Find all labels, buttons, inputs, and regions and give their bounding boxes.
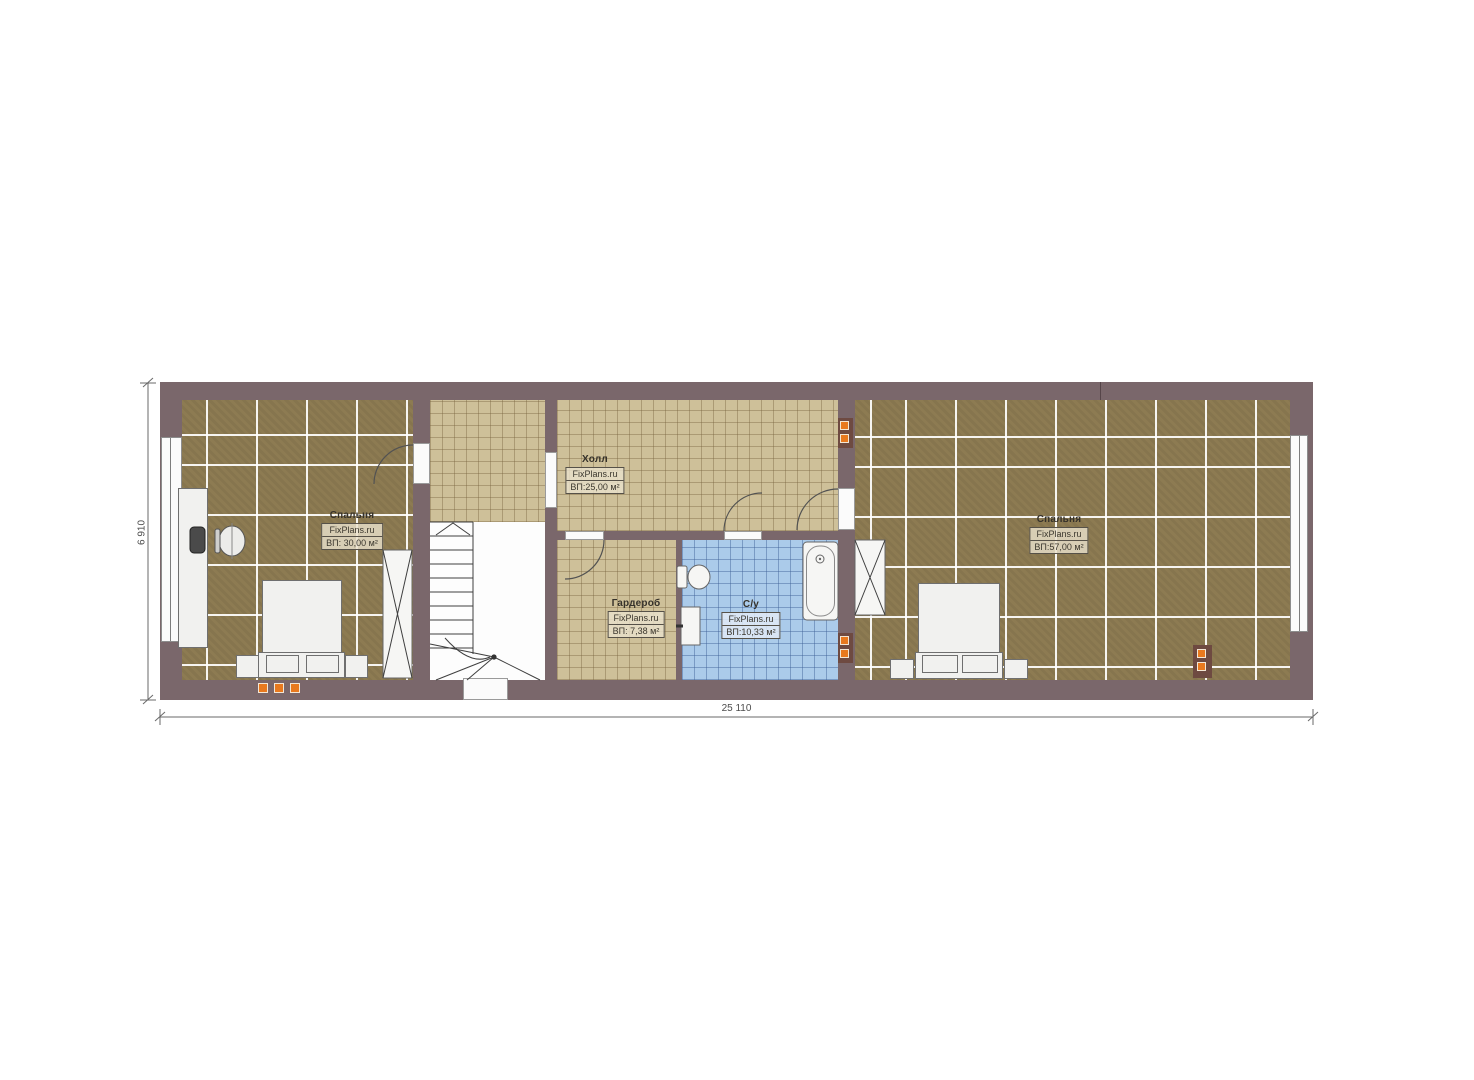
- room-info-box: FixPlans.ru ВП:57,00 м²: [1029, 527, 1088, 554]
- door-arc-wardrobe: [565, 540, 604, 579]
- room-label-wardrobe: Гардероб FixPlans.ru ВП: 7,38 м²: [608, 598, 665, 638]
- monitor: [190, 527, 205, 553]
- room-name: Холл: [565, 454, 624, 465]
- watermark: FixPlans.ru: [1030, 528, 1087, 540]
- room-name: Спальня: [321, 510, 383, 521]
- watermark: FixPlans.ru: [722, 613, 779, 625]
- door-arc-bedroom-left: [374, 445, 413, 484]
- floor-plan: Спальня FixPlans.ru ВП: 30,00 м² Холл Fi…: [160, 382, 1313, 700]
- office-chair: [215, 523, 245, 559]
- room-area: ВП: 30,00 м²: [322, 536, 382, 549]
- watermark: FixPlans.ru: [566, 468, 623, 480]
- dimension-height-label: 6 910: [137, 507, 148, 559]
- room-label-bedroom-left: Спальня FixPlans.ru ВП: 30,00 м²: [321, 510, 383, 550]
- room-area: ВП:25,00 м²: [566, 480, 623, 493]
- room-label-hall: Холл FixPlans.ru ВП:25,00 м²: [565, 454, 624, 494]
- room-name: Спальня: [1029, 514, 1088, 525]
- floor-plan-page: Спальня FixPlans.ru ВП: 30,00 м² Холл Fi…: [0, 0, 1474, 1080]
- room-area: ВП: 7,38 м²: [609, 624, 664, 637]
- sink: [676, 607, 700, 645]
- room-label-bathroom: С/у FixPlans.ru ВП:10,33 м²: [721, 599, 780, 639]
- room-info-box: FixPlans.ru ВП:10,33 м²: [721, 612, 780, 639]
- staircase: [430, 522, 540, 680]
- watermark: FixPlans.ru: [609, 612, 664, 624]
- room-area: ВП:10,33 м²: [722, 625, 779, 638]
- toilet: [677, 565, 710, 589]
- door-arc-bedroom-right: [797, 489, 838, 530]
- wardrobe-cabinet-left: [383, 550, 412, 678]
- room-label-bedroom-right: Спальня FixPlans.ru ВП:57,00 м²: [1029, 514, 1088, 554]
- bathtub: [803, 542, 838, 620]
- dimension-width-label: 25 110: [700, 703, 773, 714]
- wardrobe-cabinet-right: [855, 540, 885, 615]
- room-name: Гардероб: [608, 598, 665, 609]
- room-info-box: FixPlans.ru ВП:25,00 м²: [565, 467, 624, 494]
- room-info-box: FixPlans.ru ВП: 30,00 м²: [321, 523, 383, 550]
- room-info-box: FixPlans.ru ВП: 7,38 м²: [608, 611, 665, 638]
- room-area: ВП:57,00 м²: [1030, 540, 1087, 553]
- room-name: С/у: [721, 599, 780, 610]
- watermark: FixPlans.ru: [322, 524, 382, 536]
- door-arc-bathroom: [724, 493, 762, 531]
